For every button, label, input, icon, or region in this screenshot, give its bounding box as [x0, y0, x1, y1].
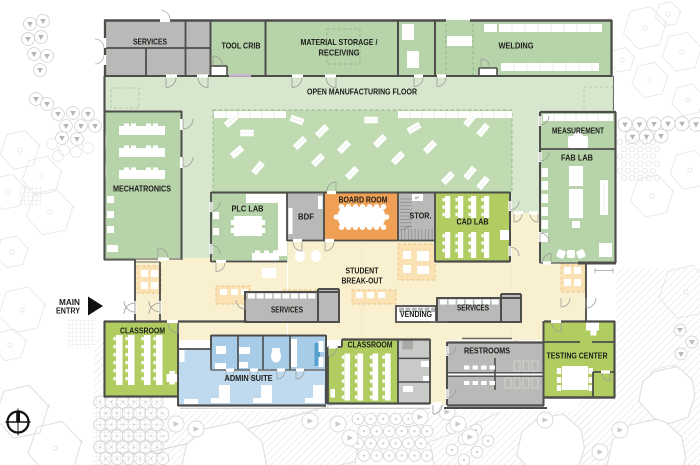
svg-text:FAB LAB: FAB LAB	[561, 154, 593, 163]
svg-text:BDF: BDF	[298, 213, 314, 222]
svg-text:TESTING CENTER: TESTING CENTER	[547, 352, 608, 361]
svg-text:OPEN MANUFACTURING FLOOR: OPEN MANUFACTURING FLOOR	[307, 87, 417, 97]
svg-text:VENDING: VENDING	[400, 310, 432, 319]
svg-text:MATERIAL STORAGE /: MATERIAL STORAGE /	[301, 38, 379, 47]
svg-text:ENTRY: ENTRY	[56, 307, 81, 316]
svg-text:TOOL CRIB: TOOL CRIB	[222, 42, 261, 51]
svg-text:CAD LAB: CAD LAB	[457, 218, 489, 227]
svg-text:MEASUREMENT: MEASUREMENT	[552, 127, 604, 136]
svg-text:CLASSROOM: CLASSROOM	[120, 327, 165, 336]
svg-text:UP: UP	[415, 196, 419, 200]
svg-text:BREAK-OUT: BREAK-OUT	[342, 277, 383, 286]
svg-text:BOARD ROOM: BOARD ROOM	[339, 196, 388, 205]
svg-text:STOR.: STOR.	[410, 212, 432, 221]
svg-text:MECHATRONICS: MECHATRONICS	[113, 185, 171, 194]
svg-text:WELDING: WELDING	[499, 42, 534, 51]
svg-text:RECEIVING: RECEIVING	[319, 49, 360, 58]
svg-text:SERVICES: SERVICES	[271, 306, 303, 315]
svg-text:STUDENT: STUDENT	[346, 267, 379, 276]
svg-text:ADMIN SUITE: ADMIN SUITE	[225, 374, 273, 383]
svg-text:MAIN: MAIN	[59, 298, 80, 307]
svg-text:PLC LAB: PLC LAB	[232, 205, 264, 214]
svg-text:RESTROOMS: RESTROOMS	[464, 347, 510, 356]
svg-text:CLASSROOM: CLASSROOM	[348, 341, 393, 350]
svg-text:SERVICES: SERVICES	[457, 304, 489, 313]
svg-text:SERVICES: SERVICES	[133, 38, 167, 47]
